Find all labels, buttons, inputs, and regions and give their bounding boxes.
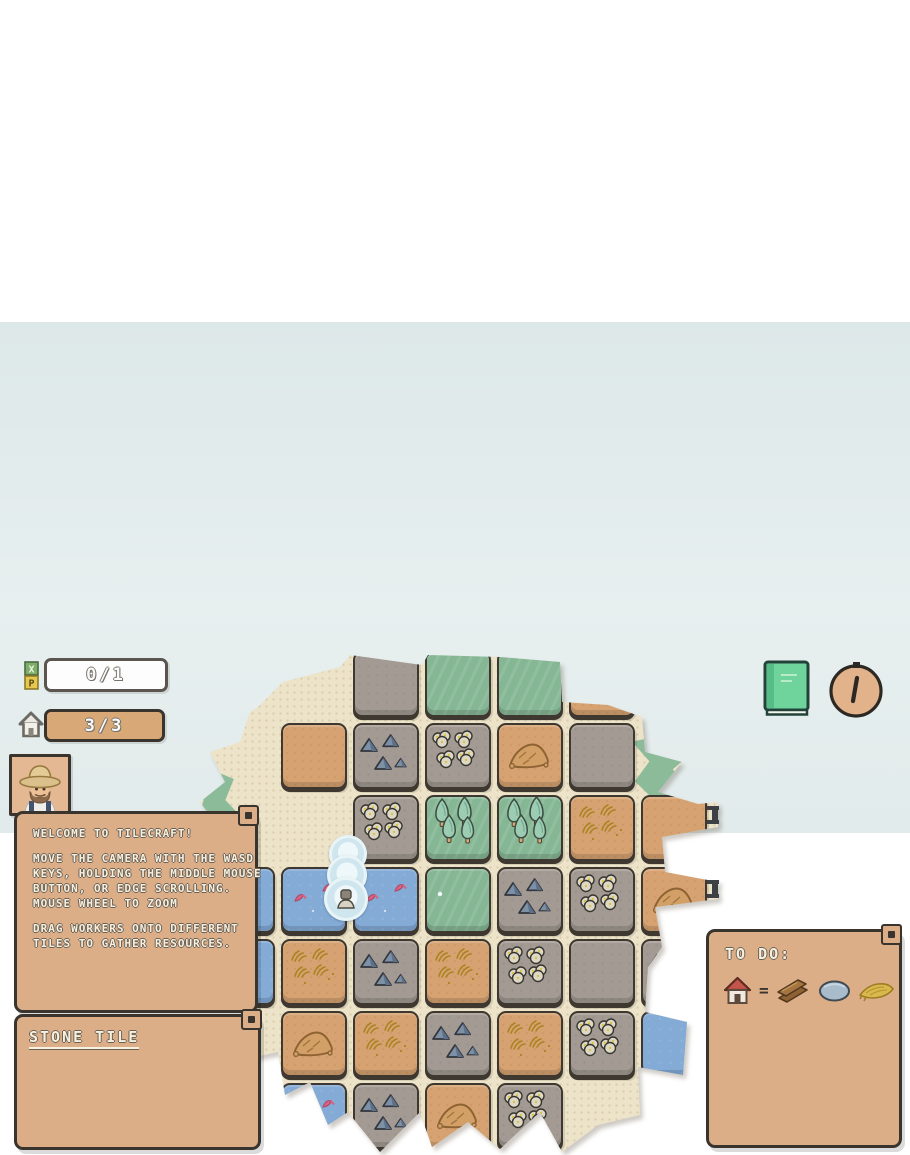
todo-panel-title: TO DO:: [725, 945, 791, 963]
map-tile-stone-light[interactable]: [497, 1083, 563, 1149]
map-tile-grass-sparkle[interactable]: [425, 867, 491, 933]
map-tile-grass-trees[interactable]: [425, 795, 491, 861]
map-tile-sand-mound[interactable]: [281, 1011, 347, 1077]
map-tile-stone-dark[interactable]: [641, 939, 707, 1005]
farmer-avatar-icon: [12, 757, 68, 813]
map-pin-icon: [706, 803, 722, 831]
clock-button[interactable]: [827, 661, 885, 719]
worker-token-stack[interactable]: [312, 830, 384, 924]
map-tile-grass[interactable]: [497, 651, 563, 717]
welcome-dialog-text: WELCOME TO TILECRAFT! MOVE THE CAMERA WI…: [17, 814, 255, 951]
map-tile-sand-mound[interactable]: [425, 1083, 491, 1149]
map-tile-sand-wheat[interactable]: [281, 939, 347, 1005]
map-tile-water[interactable]: [641, 1011, 707, 1077]
house-goal-icon: [723, 975, 752, 1006]
map-tile-grass[interactable]: [425, 651, 491, 717]
map-tile-stone-light[interactable]: [569, 867, 635, 933]
todo-panel: TO DO: =: [706, 929, 902, 1148]
dialog-text-line: [33, 911, 245, 921]
stone-tile-panel-close-button[interactable]: [241, 1009, 262, 1030]
map-tile-sand-wheat[interactable]: [569, 795, 635, 861]
wheat-resource-icon: [858, 979, 895, 1002]
dialog-text-line: WELCOME TO TILECRAFT!: [33, 826, 245, 841]
equals-sign: =: [759, 981, 769, 1000]
close-icon: [888, 931, 895, 938]
green-book-icon: [762, 660, 812, 718]
todo-goal-row: =: [709, 963, 899, 1006]
map-tile-sand-mound[interactable]: [641, 867, 707, 933]
map-tile-stone-dark[interactable]: [353, 939, 419, 1005]
map-tile-stone-dark[interactable]: [425, 1011, 491, 1077]
dialog-text-line: KEYS, HOLDING THE MIDDLE MOUSE: [33, 866, 245, 881]
todo-panel-close-button[interactable]: [881, 924, 902, 945]
clock-icon: [827, 661, 885, 719]
worker-token[interactable]: [324, 877, 368, 921]
stone-tile-panel: STONE TILE: [14, 1014, 261, 1150]
map-tile-stone-light[interactable]: [497, 939, 563, 1005]
map-tile-stone[interactable]: [569, 723, 635, 789]
map-tile-stone-light[interactable]: [569, 1011, 635, 1077]
map-tile-grass-trees[interactable]: [497, 795, 563, 861]
close-icon: [248, 1016, 255, 1023]
game-viewport: X P 0/1 3/3: [0, 322, 910, 833]
map-tile-sand-wheat[interactable]: [497, 1011, 563, 1077]
map-tile-stone-dark[interactable]: [353, 1083, 419, 1149]
close-icon: [245, 812, 252, 819]
map-pin-icon: [706, 877, 722, 905]
game-screen: X P 0/1 3/3: [0, 0, 910, 1155]
dialog-text-line: DRAG WORKERS ONTO DIFFERENT: [33, 921, 245, 936]
dialog-text-line: [33, 841, 245, 851]
svg-text:X: X: [28, 665, 34, 676]
house-counter: 3/3: [44, 709, 165, 742]
welcome-dialog: WELCOME TO TILECRAFT! MOVE THE CAMERA WI…: [14, 811, 258, 1013]
worker-figure-icon: [324, 877, 368, 921]
map-tile-sand[interactable]: [281, 723, 347, 789]
map-tile-sand-wheat[interactable]: [353, 1011, 419, 1077]
stone-resource-icon: [818, 979, 851, 1002]
dialog-text-line: MOUSE WHEEL TO ZOOM: [33, 896, 245, 911]
map-tile-stone[interactable]: [569, 939, 635, 1005]
map-tile-stone-dark[interactable]: [497, 867, 563, 933]
xp-counter: 0/1: [44, 658, 168, 692]
stone-tile-panel-title: STONE TILE: [29, 1028, 139, 1049]
svg-text:P: P: [28, 679, 34, 690]
dialog-text-line: MOVE THE CAMERA WITH THE WASD: [33, 851, 245, 866]
book-button[interactable]: [762, 660, 812, 718]
map-tile-stone[interactable]: [353, 651, 419, 717]
map-tile-stone-light[interactable]: [425, 723, 491, 789]
house-counter-value: 3/3: [85, 716, 125, 736]
dialog-text-line: BUTTON, OR EDGE SCROLLING.: [33, 881, 245, 896]
map-tile-water-fish[interactable]: [281, 1083, 347, 1149]
dialog-text-line: TILES TO GATHER RESOURCES.: [33, 936, 245, 951]
map-tile-sand-mound[interactable]: [497, 723, 563, 789]
home-icon: [17, 709, 45, 739]
xp-icon: X P: [24, 661, 39, 690]
map-area: [200, 647, 740, 1155]
avatar[interactable]: [9, 754, 71, 816]
grass-torn-edge: [632, 735, 690, 801]
welcome-dialog-close-button[interactable]: [238, 805, 259, 826]
tile-map: [200, 647, 740, 1155]
wood-planks-icon: [776, 977, 811, 1004]
map-tile-stone-dark[interactable]: [353, 723, 419, 789]
xp-counter-value: 0/1: [86, 665, 126, 685]
map-tile-sand-wheat[interactable]: [425, 939, 491, 1005]
map-tile-sand[interactable]: [569, 651, 635, 717]
map-tile-sand[interactable]: [641, 795, 707, 861]
